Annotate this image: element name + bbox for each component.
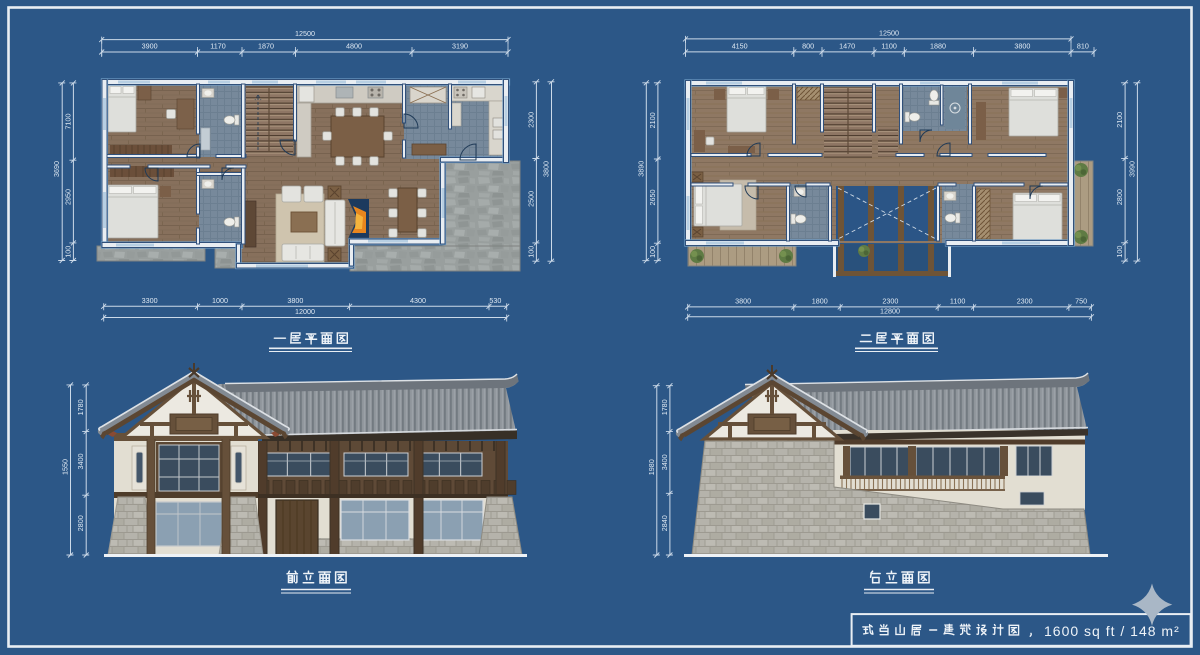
svg-text:2650: 2650 (648, 190, 657, 206)
svg-text:3400: 3400 (660, 454, 669, 470)
svg-text:810: 810 (1077, 41, 1089, 50)
svg-text:2950: 2950 (63, 189, 72, 205)
svg-text:3400: 3400 (76, 454, 85, 470)
svg-text:100: 100 (648, 246, 657, 258)
svg-text:1800: 1800 (812, 296, 828, 305)
svg-text:1170: 1170 (210, 42, 225, 51)
svg-text:1600 sq ft / 148 m²: 1600 sq ft / 148 m² (1044, 623, 1180, 639)
svg-text:3890: 3890 (636, 161, 645, 177)
svg-text:1780: 1780 (660, 399, 669, 415)
svg-text:800: 800 (802, 41, 814, 50)
svg-text:3300: 3300 (142, 296, 158, 305)
svg-text:12800: 12800 (880, 306, 900, 315)
svg-text:2800: 2800 (76, 515, 85, 531)
svg-text:4150: 4150 (732, 41, 748, 50)
svg-text:1470: 1470 (839, 41, 855, 50)
svg-text:1870: 1870 (258, 42, 274, 51)
svg-text:4300: 4300 (410, 296, 426, 305)
svg-text:2800: 2800 (1115, 189, 1124, 205)
svg-text:3990: 3990 (1127, 161, 1136, 177)
svg-text:3690: 3690 (52, 161, 61, 177)
svg-text:2840: 2840 (660, 515, 669, 531)
svg-text:750: 750 (1075, 296, 1087, 305)
svg-text:2100: 2100 (1115, 112, 1124, 128)
svg-text:1550: 1550 (61, 459, 70, 475)
svg-text:3800: 3800 (1014, 41, 1030, 50)
svg-text:530: 530 (489, 296, 501, 305)
svg-text:100: 100 (63, 246, 72, 258)
svg-text:3800: 3800 (542, 161, 551, 177)
svg-text:3800: 3800 (735, 296, 751, 305)
svg-text:1100: 1100 (950, 296, 965, 305)
svg-text:7100: 7100 (63, 114, 72, 130)
svg-text:12500: 12500 (879, 28, 899, 37)
svg-text:3190: 3190 (452, 42, 468, 51)
svg-text:1980: 1980 (647, 459, 656, 475)
svg-text:1000: 1000 (212, 296, 228, 305)
svg-text:1100: 1100 (881, 41, 896, 50)
svg-text:100: 100 (526, 246, 535, 258)
svg-text:3900: 3900 (142, 42, 158, 51)
svg-text:2100: 2100 (648, 112, 657, 128)
svg-text:3800: 3800 (287, 296, 303, 305)
svg-text:4800: 4800 (346, 42, 362, 51)
svg-text:2300: 2300 (526, 112, 535, 128)
svg-text:100: 100 (1115, 246, 1124, 258)
svg-text:2300: 2300 (882, 296, 898, 305)
svg-text:12000: 12000 (295, 307, 315, 316)
svg-text:12500: 12500 (295, 29, 315, 38)
svg-text:1880: 1880 (930, 41, 946, 50)
svg-text:1780: 1780 (76, 399, 85, 415)
svg-text:2500: 2500 (526, 191, 535, 207)
svg-text:2300: 2300 (1017, 296, 1033, 305)
